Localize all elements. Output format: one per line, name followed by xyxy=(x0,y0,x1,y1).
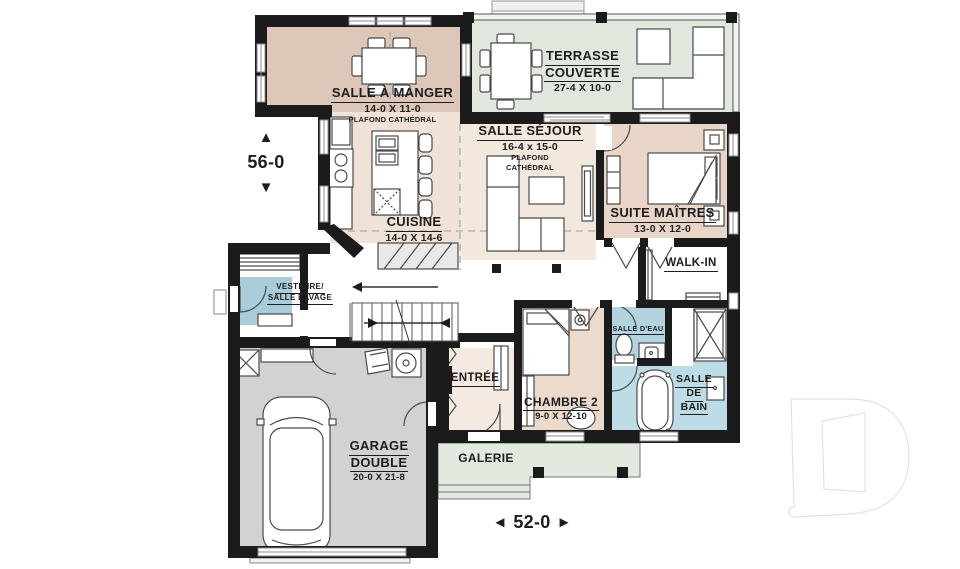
exterior-step xyxy=(214,290,226,314)
hall-post xyxy=(492,264,501,273)
arrow-right-icon: ► xyxy=(557,515,572,530)
arrow-down-icon: ▼ xyxy=(259,180,274,195)
coffee-table xyxy=(529,177,564,204)
width-value: 52-0 xyxy=(513,512,550,533)
depth-dimension: ▲ 56-0 ▼ xyxy=(234,130,298,195)
walkin-fixtures xyxy=(644,247,720,301)
terrace-post xyxy=(726,12,737,23)
porch-post xyxy=(617,467,628,478)
porch-structure xyxy=(438,443,640,499)
porch-post xyxy=(533,467,544,478)
toilet xyxy=(616,334,632,356)
driveway-step xyxy=(250,558,410,563)
pantry-counter xyxy=(378,243,458,269)
rug xyxy=(567,407,595,429)
stool xyxy=(419,200,432,218)
fridge xyxy=(332,119,350,145)
stool xyxy=(419,134,432,152)
terrace-post xyxy=(596,12,607,23)
stool xyxy=(419,178,432,196)
stairs xyxy=(350,282,458,344)
doors xyxy=(612,243,640,268)
depth-value: 56-0 xyxy=(247,152,284,173)
terrace-chair xyxy=(637,29,670,64)
arrow-up-icon: ▲ xyxy=(259,130,274,145)
stair-arrow xyxy=(352,282,362,292)
floorplan-canvas: SALLE À MANGER 14-0 X 11-0 PLAFOND CATHÉ… xyxy=(0,0,960,569)
terrace-table xyxy=(491,43,531,99)
width-dimension: ◄ 52-0 ► xyxy=(462,512,602,533)
arrow-left-icon: ◄ xyxy=(493,515,508,530)
hall-post xyxy=(552,264,561,273)
drummond-logo xyxy=(789,399,909,517)
dining-table xyxy=(362,48,416,84)
shelf xyxy=(261,349,313,362)
bench xyxy=(258,314,292,326)
stool xyxy=(419,156,432,174)
dresser xyxy=(607,156,620,204)
floorplan-drawing xyxy=(0,0,960,569)
